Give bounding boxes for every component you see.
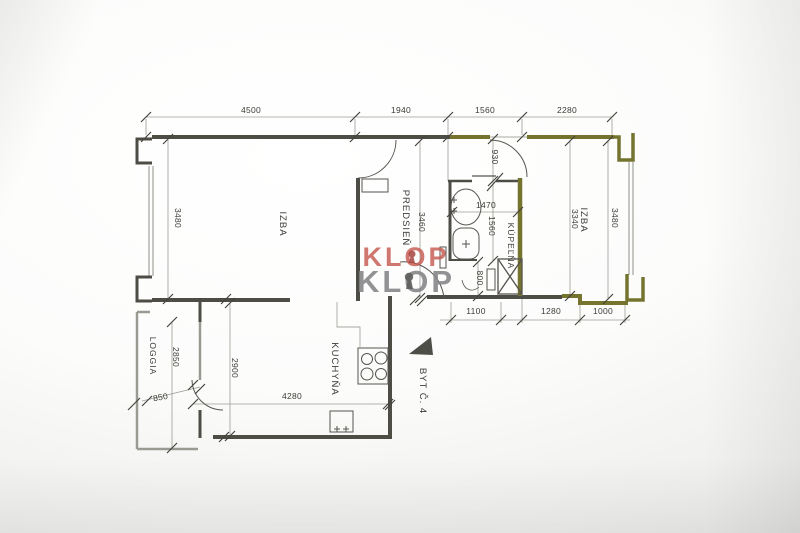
- radiator-bath: [487, 269, 495, 290]
- dim-predsien-3460: 3460: [417, 212, 427, 232]
- hall-niche: [362, 179, 388, 192]
- dim-bottom-1100: 1100: [466, 306, 485, 316]
- burner: [361, 368, 373, 380]
- room-kuchyna: KUCHYŇA: [329, 342, 340, 395]
- dim-top-4500: 4500: [241, 105, 261, 115]
- dim-bath-1470: 1470: [476, 200, 496, 210]
- door-loggia: [192, 380, 223, 410]
- dim-bath-930: 930: [490, 149, 500, 164]
- dim-kitchen-2900: 2900: [230, 358, 240, 378]
- unit-arrow-icon: [409, 337, 433, 355]
- room-predsien: PREDSIEŇ: [400, 190, 411, 247]
- dim-bottom-1000: 1000: [593, 306, 613, 316]
- dim-top-2280: 2280: [557, 105, 577, 115]
- dim-bottom-1280: 1280: [541, 306, 561, 316]
- door-izba-left: [358, 140, 396, 178]
- burner: [375, 352, 387, 364]
- dim-loggia-850: 850: [152, 391, 169, 403]
- watermark-line2: KLOP: [357, 264, 455, 299]
- burner: [362, 354, 373, 365]
- watermark: KLOP KLOP: [357, 242, 455, 299]
- room-kupelna: KÚPEĽŇA: [506, 223, 516, 270]
- floor-plan-photo: 4500 1940 1560 2280 3480 3460 930 1470 1…: [0, 0, 800, 533]
- floor-plan: 4500 1940 1560 2280 3480 3460 930 1470 1…: [0, 0, 800, 533]
- room-loggia: LOGGIA: [148, 337, 158, 376]
- room-izba-right: IZBA: [578, 207, 589, 232]
- dim-left-3480: 3480: [173, 208, 183, 228]
- room-izba-left: IZBA: [277, 211, 288, 236]
- dim-right-3480: 3480: [610, 208, 620, 228]
- dim-kitchen-4280: 4280: [282, 391, 302, 401]
- dim-bath-1560: 1560: [487, 216, 497, 236]
- unit-label: BYT Č. 4: [417, 368, 428, 414]
- burner: [376, 369, 387, 380]
- sink: [330, 411, 353, 432]
- dim-top-1560: 1560: [475, 105, 495, 115]
- dim-top-1940: 1940: [391, 105, 411, 115]
- toilet-cross-icon: [462, 240, 470, 248]
- dim-loggia-2850: 2850: [171, 347, 181, 367]
- loggia-walls: [137, 312, 200, 449]
- dim-bath-800: 800: [475, 270, 485, 285]
- sink-taps-icon: [334, 426, 349, 432]
